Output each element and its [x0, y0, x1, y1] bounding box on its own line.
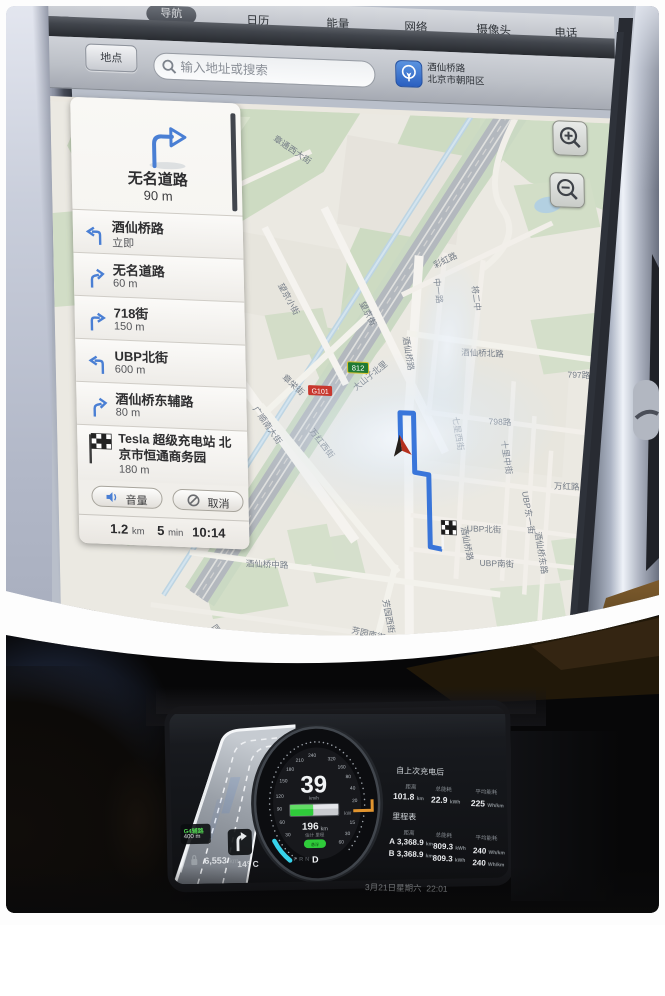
- svg-text:60: 60: [338, 840, 344, 846]
- svg-text:150: 150: [279, 778, 287, 784]
- svg-text:40: 40: [350, 786, 356, 792]
- svg-text:km/h: km/h: [309, 795, 319, 800]
- svg-text:196: 196: [302, 821, 319, 832]
- svg-text:kW: kW: [344, 811, 352, 817]
- svg-text:R: R: [299, 857, 303, 863]
- svg-text:悬浮: 悬浮: [311, 841, 319, 847]
- svg-text:酒仙桥中路: 酒仙桥中路: [246, 558, 289, 570]
- svg-text:812: 812: [352, 363, 365, 372]
- svg-text:60: 60: [279, 820, 285, 826]
- svg-text:80: 80: [346, 774, 352, 780]
- svg-text:15: 15: [350, 820, 356, 826]
- svg-text:G101: G101: [312, 388, 329, 396]
- svg-text:120: 120: [276, 794, 284, 800]
- svg-text:90: 90: [277, 806, 283, 812]
- svg-text:210: 210: [296, 758, 304, 764]
- svg-text:30: 30: [345, 831, 351, 837]
- svg-text:180: 180: [286, 767, 294, 773]
- svg-text:P: P: [293, 857, 297, 863]
- svg-text:20: 20: [352, 798, 358, 804]
- svg-text:240: 240: [308, 753, 316, 759]
- svg-text:N: N: [305, 857, 309, 863]
- svg-text:320: 320: [328, 756, 336, 762]
- svg-text:D: D: [312, 854, 319, 864]
- svg-text:160: 160: [338, 764, 346, 770]
- svg-text:UBP北街: UBP北街: [467, 523, 502, 534]
- svg-text:UBP南街: UBP南街: [479, 558, 514, 569]
- svg-text:30: 30: [285, 832, 291, 838]
